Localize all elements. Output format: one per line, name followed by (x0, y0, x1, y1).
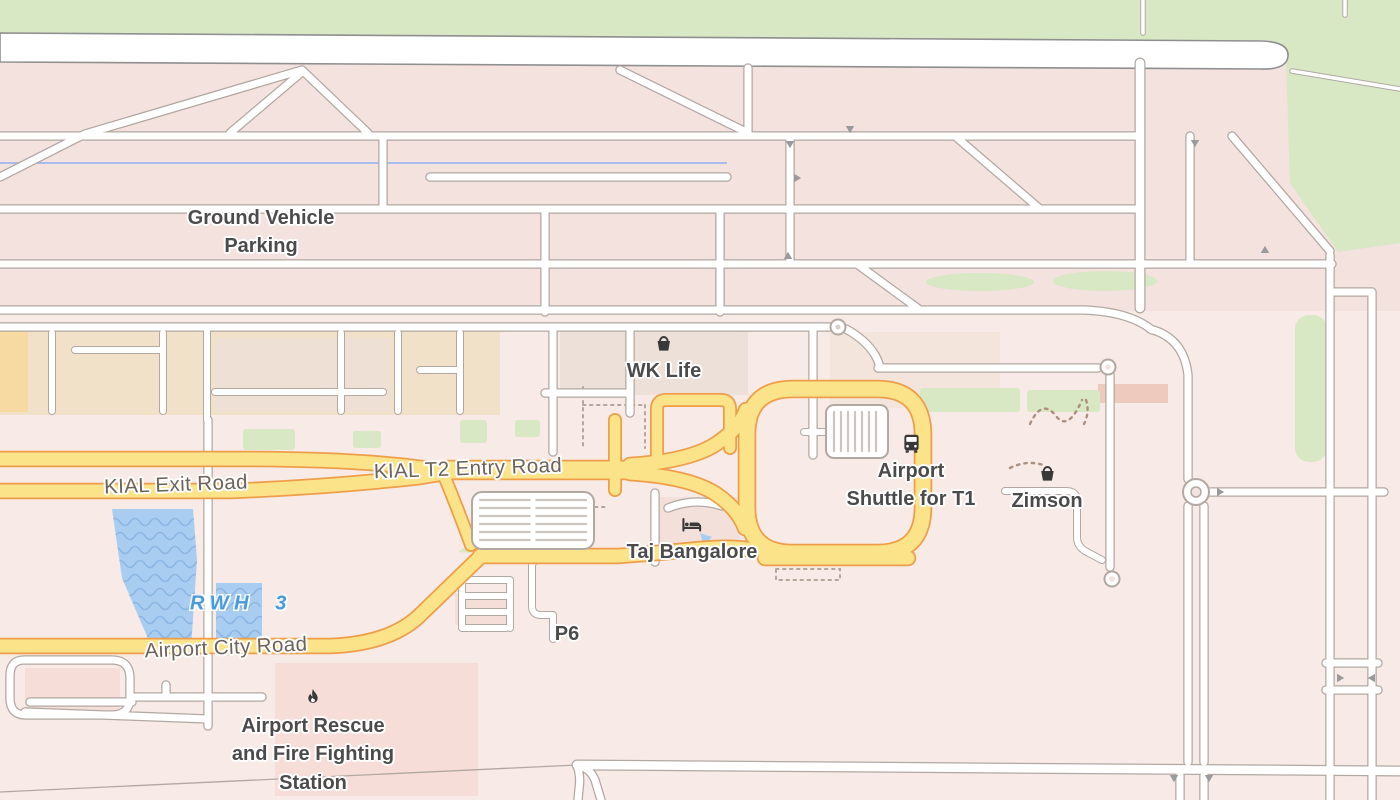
map-viewport[interactable]: Ground Vehicle Parking WK Life Airport S… (0, 0, 1400, 800)
poi-label: P6 (555, 620, 579, 648)
shopping-basket-icon (653, 331, 675, 355)
fire-icon (301, 686, 325, 710)
poi-label: Zimson (1011, 487, 1082, 515)
poi-label: Ground Vehicle Parking (174, 204, 349, 261)
road-label-kial-exit: KIAL Exit Road (104, 470, 249, 499)
poi-ground-vehicle-parking[interactable]: Ground Vehicle Parking (174, 204, 349, 261)
poi-label: Taj Bangalore (627, 538, 758, 566)
water-label-rwh3: RWH 3 (190, 593, 292, 616)
poi-fire-station[interactable]: Airport Rescue and Fire Fighting Station (227, 686, 399, 797)
poi-label: WK Life (627, 357, 701, 385)
poi-zimson[interactable]: Zimson (1011, 461, 1082, 515)
shopping-basket-icon (1036, 461, 1058, 485)
poi-label: Airport Rescue and Fire Fighting Station (227, 712, 399, 797)
poi-label: Airport Shuttle for T1 (845, 457, 977, 514)
poi-p6[interactable]: P6 (555, 620, 579, 648)
bus-icon (900, 431, 923, 455)
poi-taj-bangalore[interactable]: Taj Bangalore (627, 512, 758, 566)
poi-wk-life[interactable]: WK Life (627, 331, 701, 385)
map-canvas[interactable] (0, 0, 1400, 800)
hotel-bed-icon (680, 512, 704, 536)
poi-airport-shuttle-t1[interactable]: Airport Shuttle for T1 (845, 431, 977, 514)
